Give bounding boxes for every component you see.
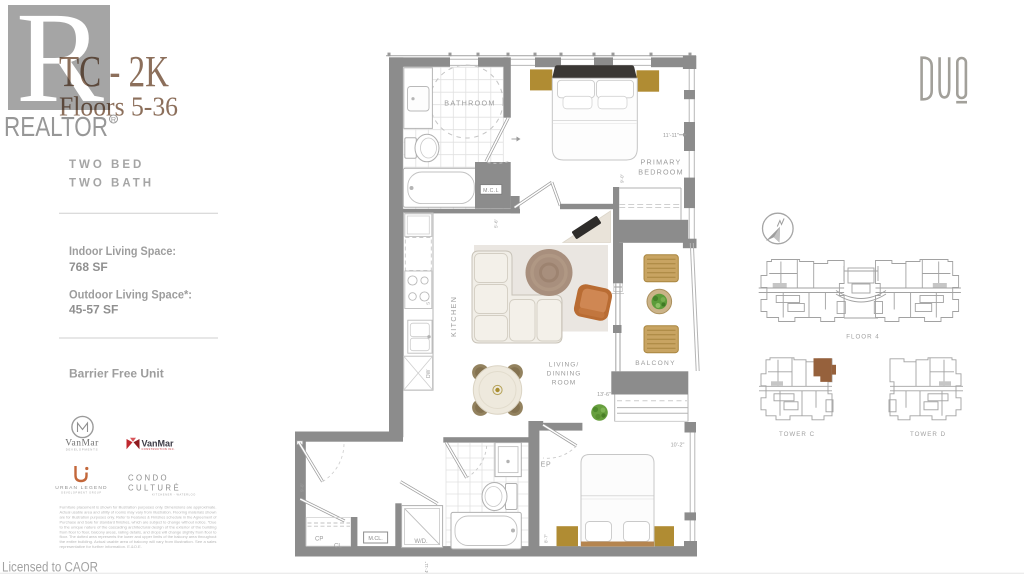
svg-text:45-57 SF: 45-57 SF (69, 303, 118, 317)
svg-text:8'-7": 8'-7" (544, 533, 549, 543)
svg-text:CL: CL (334, 544, 342, 550)
svg-text:BEDROOM: BEDROOM (638, 168, 684, 177)
svg-text:URBAN LEGEND: URBAN LEGEND (55, 485, 107, 491)
svg-text:VanMar: VanMar (142, 439, 175, 449)
svg-text:Licensed to CAOR: Licensed to CAOR (2, 560, 98, 575)
svg-text:KITCHEN: KITCHEN (449, 296, 458, 337)
svg-text:TOWER D: TOWER D (910, 431, 946, 438)
svg-text:FLOOR 4: FLOOR 4 (846, 334, 879, 341)
svg-text:TOWER C: TOWER C (779, 431, 815, 438)
svg-text:KITCHENER - WATERLOO: KITCHENER - WATERLOO (152, 493, 196, 497)
svg-text:CULTURE: CULTURE (128, 484, 181, 493)
svg-text:CP: CP (315, 537, 323, 543)
svg-text:R: R (111, 115, 116, 124)
svg-text:W/D.: W/D. (414, 539, 428, 545)
svg-text:13'-6": 13'-6" (597, 392, 611, 398)
svg-text:DEVELOPMENT GROUP: DEVELOPMENT GROUP (61, 492, 102, 495)
svg-text:REALTOR: REALTOR (4, 111, 108, 142)
svg-text:DW: DW (426, 369, 432, 378)
svg-text:EP: EP (541, 462, 552, 469)
svg-text:9'-0": 9'-0" (620, 173, 625, 183)
svg-text:5'-6": 5'-6" (494, 218, 499, 228)
svg-text:CONDO: CONDO (128, 474, 169, 483)
svg-text:Outdoor Living Space*:: Outdoor Living Space*: (69, 288, 192, 302)
svg-text:LIVING/: LIVING/ (549, 362, 579, 369)
svg-text:4'-11": 4'-11" (424, 561, 429, 573)
svg-text:M.CL.: M.CL. (368, 536, 382, 542)
svg-text:representative for further inf: representative for further information. … (60, 544, 142, 549)
svg-text:ROOM: ROOM (552, 380, 577, 387)
svg-text:S: S (426, 302, 432, 305)
svg-text:9'-8": 9'-8" (300, 482, 305, 492)
svg-text:BALCONY: BALCONY (635, 360, 676, 367)
svg-text:DEVELOPMENTS: DEVELOPMENTS (66, 447, 99, 451)
svg-text:PRIMARY: PRIMARY (640, 158, 681, 167)
svg-text:Barrier Free Unit: Barrier Free Unit (69, 367, 164, 381)
svg-text:TC - 2K: TC - 2K (59, 47, 169, 96)
svg-text:768 SF: 768 SF (69, 260, 108, 274)
svg-text:CONSTRUCTION INC.: CONSTRUCTION INC. (142, 447, 176, 451)
svg-text:Indoor Living Space:: Indoor Living Space: (69, 244, 176, 258)
svg-text:TWO BED: TWO BED (69, 159, 144, 171)
svg-text:11'-11": 11'-11" (663, 133, 679, 139)
svg-text:BATHROOM: BATHROOM (444, 99, 495, 108)
svg-text:TWO BATH: TWO BATH (69, 178, 154, 190)
svg-text:DINNING: DINNING (547, 371, 582, 378)
svg-text:10'-2": 10'-2" (671, 443, 685, 449)
svg-text:M.C.L: M.C.L (483, 188, 499, 194)
